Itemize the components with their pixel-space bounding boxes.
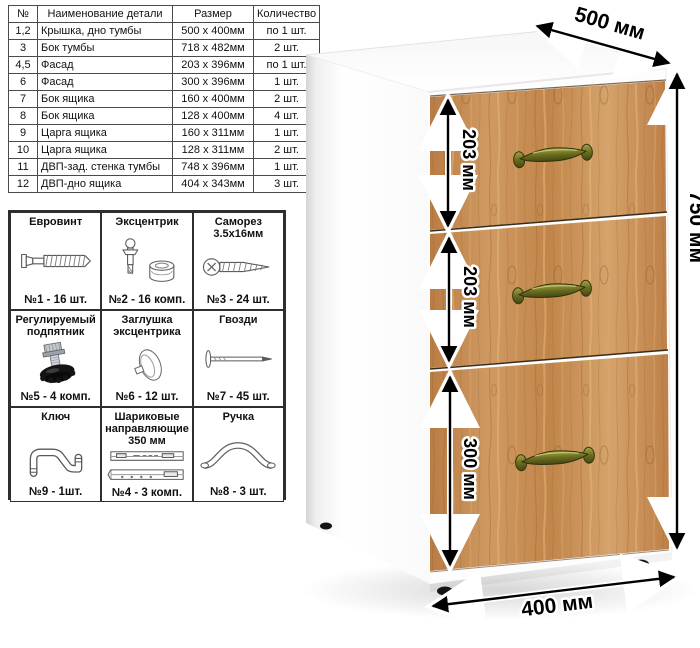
hardware-cell: Ручка №8 - 3 шт. — [193, 407, 284, 502]
hardware-icon-holder — [199, 326, 277, 391]
hardware-cell: Ключ №9 - 1шт. — [10, 407, 101, 502]
drawer-bottom-dimension-label: 300 мм — [460, 438, 480, 500]
hardware-cell: Эксцентрик №2 - 16 комп. — [101, 212, 192, 310]
table-cell: ДВП-дно ящика — [38, 176, 173, 193]
hex-key-icon — [19, 430, 93, 480]
table-cell: 300 x 396мм — [173, 74, 254, 91]
hardware-title: Эксцентрик — [115, 216, 178, 228]
table-row: 1,2Крышка, дно тумбы500 x 400ммпо 1 шт. — [9, 23, 320, 40]
table-cell: 4,5 — [9, 57, 38, 74]
euro-screw-icon — [17, 244, 95, 278]
cam-cover-icon — [112, 340, 182, 390]
column-header: № — [9, 6, 38, 23]
hardware-title: Гвозди — [219, 314, 257, 326]
hardware-title: Шариковые направляющие 350 мм — [104, 411, 189, 447]
hardware-title: Ключ — [41, 411, 70, 423]
assembly-sheet: №Наименование деталиРазмерКоличество1,2К… — [0, 0, 700, 648]
hardware-count: №8 - 3 шт. — [210, 486, 266, 498]
table-cell: 128 x 311мм — [173, 142, 254, 159]
column-header: Размер — [173, 6, 254, 23]
hardware-icon-holder — [199, 240, 277, 294]
table-cell: 1,2 — [9, 23, 38, 40]
hardware-cell: Заглушка эксцентрика №6 - 12 шт. — [101, 310, 192, 407]
hardware-grid: Евровинт №1 - 16 шт.Эксцентрик №2 - 16 к… — [8, 210, 286, 500]
hardware-count: №1 - 16 шт. — [24, 294, 87, 306]
parts-table-header-row: №Наименование деталиРазмерКоличество — [9, 6, 320, 23]
table-cell: 718 x 482мм — [173, 40, 254, 57]
table-cell: 160 x 400мм — [173, 91, 254, 108]
cabinet-drawing: 500 мм 750 мм 400 мм 203 мм 203 мм 300 м… — [300, 0, 700, 648]
hardware-title: Евровинт — [29, 216, 82, 228]
hardware-title: Ручка — [223, 411, 254, 423]
side-panel — [306, 55, 430, 584]
table-cell: 160 x 311мм — [173, 125, 254, 142]
table-cell: 11 — [9, 159, 38, 176]
height-dimension-label: 750 мм — [685, 191, 700, 263]
nail-icon — [199, 342, 277, 376]
table-row: 7Бок ящика160 x 400мм2 шт. — [9, 91, 320, 108]
table-row: 3Бок тумбы718 x 482мм2 шт. — [9, 40, 320, 57]
cabinet-diagram: 500 мм 750 мм 400 мм 203 мм 203 мм 300 м… — [300, 0, 700, 648]
hardware-title: Саморез 3.5х16мм — [196, 216, 281, 240]
table-cell: 500 x 400мм — [173, 23, 254, 40]
hardware-title: Регулируемый подпятник — [13, 314, 98, 338]
table-row: 4,5Фасад203 x 396ммпо 1 шт. — [9, 57, 320, 74]
hardware-count: №4 - 3 комп. — [112, 487, 182, 499]
hardware-icon-holder — [108, 228, 186, 294]
hardware-count: №9 - 1шт. — [29, 486, 82, 498]
hardware-cell: Регулируемый подпятник №5 - 4 комп. — [10, 310, 101, 407]
table-cell: Фасад — [38, 57, 173, 74]
table-cell: Царга ящика — [38, 125, 173, 142]
hardware-count: №2 - 16 комп. — [109, 294, 186, 306]
drawer-top-dimension-label: 203 мм — [459, 129, 479, 191]
table-cell: Фасад — [38, 74, 173, 91]
cam-icon — [108, 236, 186, 286]
table-row: 8Бок ящика128 x 400мм4 шт. — [9, 108, 320, 125]
hardware-cell: Гвозди №7 - 45 шт. — [193, 310, 284, 407]
pull-handle-icon — [198, 435, 278, 475]
table-cell: 10 — [9, 142, 38, 159]
table-cell: 3 — [9, 40, 38, 57]
hardware-icon-holder — [19, 423, 93, 486]
self-tapping-screw-icon — [199, 247, 277, 287]
table-cell: 8 — [9, 108, 38, 125]
hardware-icon-holder — [21, 338, 91, 391]
table-cell: 12 — [9, 176, 38, 193]
hardware-icon-holder — [17, 228, 95, 294]
drawer-middle-dimension-label: 203 мм — [460, 266, 480, 328]
hardware-count: №6 - 12 шт. — [116, 391, 179, 403]
ball-slides-icon — [107, 447, 187, 487]
table-row: 11ДВП-зад. стенка тумбы748 x 396мм1 шт. — [9, 159, 320, 176]
table-cell: ДВП-зад. стенка тумбы — [38, 159, 173, 176]
hardware-count: №7 - 45 шт. — [207, 391, 270, 403]
table-cell: Царга ящика — [38, 142, 173, 159]
table-cell: 203 x 396мм — [173, 57, 254, 74]
parts-table: №Наименование деталиРазмерКоличество1,2К… — [8, 5, 320, 193]
hardware-cell: Шариковые направляющие 350 мм №4 - 3 ком… — [101, 407, 192, 502]
hardware-icon-holder — [112, 338, 182, 391]
table-row: 10Царга ящика128 x 311мм2 шт. — [9, 142, 320, 159]
hardware-cell: Саморез 3.5х16мм №3 - 24 шт. — [193, 212, 284, 310]
hardware-title: Заглушка эксцентрика — [104, 314, 189, 338]
table-cell: 9 — [9, 125, 38, 142]
hardware-count: №3 - 24 шт. — [207, 294, 270, 306]
table-cell: Бок ящика — [38, 91, 173, 108]
table-row: 12ДВП-дно ящика404 x 343мм3 шт. — [9, 176, 320, 193]
table-cell: 128 x 400мм — [173, 108, 254, 125]
table-cell: Крышка, дно тумбы — [38, 23, 173, 40]
table-row: 6Фасад300 x 396мм1 шт. — [9, 74, 320, 91]
adjustable-foot-icon — [21, 340, 91, 390]
hardware-cell: Евровинт №1 - 16 шт. — [10, 212, 101, 310]
hardware-icon-holder — [198, 423, 278, 486]
hardware-count: №5 - 4 комп. — [21, 391, 91, 403]
column-header: Наименование детали — [38, 6, 173, 23]
table-row: 9Царга ящика160 x 311мм1 шт. — [9, 125, 320, 142]
table-cell: 748 x 396мм — [173, 159, 254, 176]
hardware-icon-holder — [107, 447, 187, 487]
table-cell: Бок тумбы — [38, 40, 173, 57]
table-cell: 6 — [9, 74, 38, 91]
table-cell: 7 — [9, 91, 38, 108]
table-cell: 404 x 343мм — [173, 176, 254, 193]
table-cell: Бок ящика — [38, 108, 173, 125]
